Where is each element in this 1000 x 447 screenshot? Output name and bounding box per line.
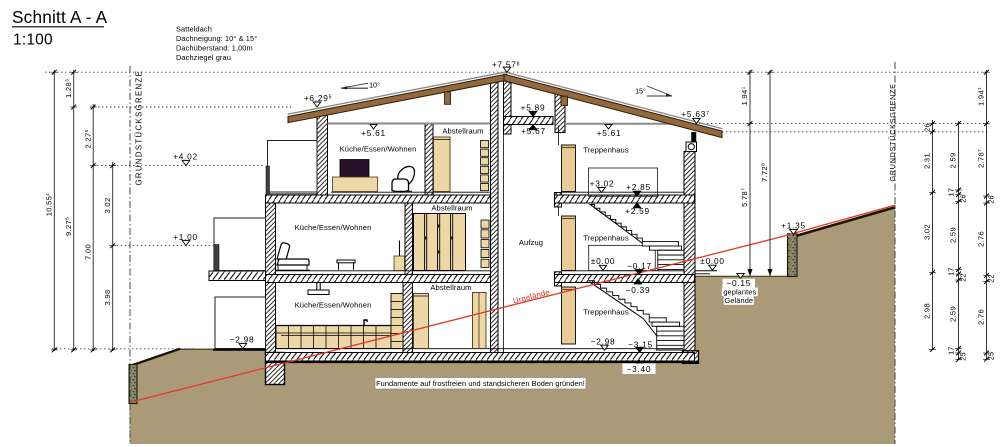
svg-text:2.31: 2.31 bbox=[923, 153, 932, 169]
svg-text:−0.39: −0.39 bbox=[626, 285, 651, 295]
svg-text:26: 26 bbox=[987, 195, 996, 203]
svg-text:+2.85: +2.85 bbox=[626, 182, 651, 192]
svg-text:17: 17 bbox=[947, 188, 956, 196]
svg-text:Abstellraum: Abstellraum bbox=[431, 203, 472, 212]
svg-text:Treppenhaus: Treppenhaus bbox=[583, 234, 629, 243]
svg-text:4: 4 bbox=[45, 193, 51, 196]
svg-text:10.55: 10.55 bbox=[45, 196, 54, 217]
svg-text:Dachüberstand: 1,00m: Dachüberstand: 1,00m bbox=[176, 44, 253, 53]
svg-text:7: 7 bbox=[977, 149, 983, 152]
svg-text:+4.02: +4.02 bbox=[173, 151, 198, 161]
svg-text:7: 7 bbox=[741, 188, 747, 191]
svg-text:Treppenhaus: Treppenhaus bbox=[583, 146, 629, 155]
svg-text:2.78: 2.78 bbox=[977, 152, 986, 168]
svg-text:5.78: 5.78 bbox=[740, 191, 749, 207]
svg-text:3: 3 bbox=[65, 79, 71, 82]
svg-text:Gelände: Gelände bbox=[724, 296, 753, 305]
svg-text:+3.02: +3.02 bbox=[590, 178, 615, 188]
svg-text:26: 26 bbox=[923, 123, 932, 131]
svg-text:Küche/Essen/Wohnen: Küche/Essen/Wohnen bbox=[295, 301, 372, 310]
svg-text:Abstellraum: Abstellraum bbox=[430, 283, 471, 292]
svg-text:26: 26 bbox=[959, 194, 968, 202]
svg-text:5: 5 bbox=[65, 217, 71, 220]
svg-text:GRUNDSTÜCKSGRENZE: GRUNDSTÜCKSGRENZE bbox=[888, 83, 897, 181]
svg-text:1:100: 1:100 bbox=[13, 32, 53, 49]
svg-text:5: 5 bbox=[84, 129, 90, 132]
svg-text:25: 25 bbox=[959, 352, 968, 360]
svg-text:+5.89: +5.89 bbox=[521, 102, 546, 112]
svg-text:1.28: 1.28 bbox=[64, 82, 73, 98]
svg-text:±0.00: ±0.00 bbox=[700, 256, 724, 266]
svg-text:Küche/Essen/Wohnen: Küche/Essen/Wohnen bbox=[295, 223, 372, 232]
svg-text:+2.59: +2.59 bbox=[625, 206, 650, 216]
svg-text:1: 1 bbox=[977, 87, 983, 90]
svg-text:Abstellraum: Abstellraum bbox=[442, 127, 483, 136]
svg-text:25: 25 bbox=[987, 352, 996, 360]
svg-text:9.27: 9.27 bbox=[64, 220, 73, 236]
svg-text:2.98: 2.98 bbox=[923, 303, 932, 319]
svg-text:2.59: 2.59 bbox=[949, 306, 958, 322]
svg-text:1: 1 bbox=[741, 86, 747, 89]
svg-text:Treppenhaus: Treppenhaus bbox=[583, 308, 629, 317]
svg-text:+5.637: +5.637 bbox=[681, 109, 709, 119]
svg-text:+5.61: +5.61 bbox=[361, 128, 386, 138]
svg-text:1.94: 1.94 bbox=[740, 90, 749, 106]
svg-text:3.02: 3.02 bbox=[923, 224, 932, 240]
svg-text:8: 8 bbox=[761, 163, 767, 166]
svg-text:17: 17 bbox=[947, 346, 956, 354]
svg-text:Satteldach: Satteldach bbox=[176, 25, 212, 34]
svg-text:7.00: 7.00 bbox=[84, 244, 93, 260]
svg-text:+5.61: +5.61 bbox=[597, 128, 622, 138]
svg-text:+6.295: +6.295 bbox=[304, 93, 332, 103]
svg-text:2.59: 2.59 bbox=[949, 227, 958, 243]
svg-text:2.76: 2.76 bbox=[977, 231, 986, 247]
svg-text:Dachneigung: 10° & 15°: Dachneigung: 10° & 15° bbox=[176, 34, 257, 43]
svg-text:Schnitt A - A: Schnitt A - A bbox=[12, 7, 108, 27]
svg-text:22: 22 bbox=[959, 273, 968, 281]
svg-text:2.59: 2.59 bbox=[949, 153, 958, 169]
svg-text:±0.00: ±0.00 bbox=[591, 256, 615, 266]
svg-text:1.94: 1.94 bbox=[977, 90, 986, 106]
svg-text:2.76: 2.76 bbox=[977, 309, 986, 325]
svg-text:Fundamente auf frostfreien und: Fundamente auf frostfreien und standsich… bbox=[376, 379, 585, 388]
svg-text:10°: 10° bbox=[369, 81, 380, 90]
svg-text:3.02: 3.02 bbox=[103, 198, 112, 214]
svg-text:22: 22 bbox=[987, 274, 996, 282]
svg-text:3.98: 3.98 bbox=[103, 290, 112, 306]
svg-text:−2.98: −2.98 bbox=[230, 334, 255, 344]
svg-text:Dachziegel grau: Dachziegel grau bbox=[176, 53, 231, 62]
svg-text:7.72: 7.72 bbox=[760, 166, 769, 182]
svg-text:Aufzug: Aufzug bbox=[519, 238, 543, 247]
svg-text:GRUNDSTÜCKSGRENZE: GRUNDSTÜCKSGRENZE bbox=[134, 70, 143, 186]
svg-text:Küche/Essen/Wohnen: Küche/Essen/Wohnen bbox=[340, 145, 417, 154]
svg-text:15°: 15° bbox=[635, 87, 646, 96]
svg-text:−3.40: −3.40 bbox=[627, 364, 652, 374]
svg-text:17: 17 bbox=[947, 267, 956, 275]
svg-text:2.27: 2.27 bbox=[84, 133, 93, 149]
